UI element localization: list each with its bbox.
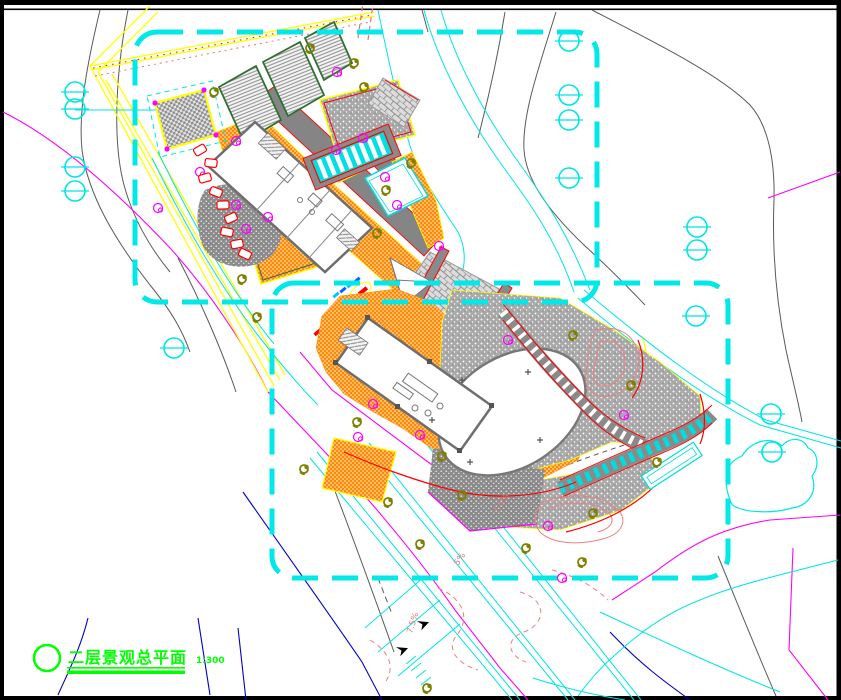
pond-outline — [726, 439, 817, 511]
title-block: 二层景观总平面 1:300 — [34, 645, 225, 674]
rockery-stone-icon — [217, 201, 229, 209]
orange-ramp — [322, 438, 396, 502]
flower-symbol-magenta-icon — [558, 574, 567, 583]
tree-symbol-cyan-icon — [555, 168, 583, 188]
tree-symbol-cyan-icon — [683, 240, 711, 260]
rockery-stone-icon — [205, 158, 218, 167]
shrub-symbol-olive-icon — [238, 275, 247, 284]
title-reference-circle — [34, 645, 60, 671]
drawing-scale: 1:300 — [196, 656, 225, 666]
slope-label: 5% — [452, 551, 468, 568]
shrub-symbol-olive-icon — [353, 418, 362, 427]
shrub-symbol-olive-icon — [384, 498, 393, 507]
tree-symbol-cyan-icon — [61, 157, 89, 177]
rockery-stone-icon — [193, 144, 207, 157]
site-plan-drawing: 7.5%5%7.5% 二层景观总平面 1:300 — [0, 0, 841, 700]
rockery-stone-icon — [230, 239, 243, 249]
shrub-symbol-olive-icon — [300, 465, 309, 474]
tree-symbol-cyan-icon — [160, 338, 188, 358]
cad-drawing-viewport: 7.5%5%7.5% 二层景观总平面 1:300 — [0, 0, 841, 700]
flower-symbol-magenta-icon — [354, 433, 363, 442]
shrub-symbol-olive-icon — [578, 558, 587, 567]
tree-symbol-cyan-icon — [555, 110, 583, 130]
tree-symbol-cyan-icon — [61, 181, 89, 201]
shrub-symbol-olive-icon — [423, 684, 432, 693]
flow-arrow-icon — [396, 643, 410, 656]
slope-label: 7.5% — [405, 611, 421, 635]
tree-symbol-cyan-icon — [555, 85, 583, 105]
shrub-symbol-olive-icon — [522, 544, 531, 553]
shrub-symbol-olive-icon — [416, 540, 425, 549]
drawing-title: 二层景观总平面 — [68, 648, 187, 667]
checker-plaza — [155, 90, 216, 149]
tree-symbol-cyan-icon — [683, 217, 711, 237]
flower-symbol-magenta-icon — [435, 242, 444, 251]
flower-symbol-magenta-icon — [154, 204, 163, 213]
rockery-stone-icon — [220, 227, 233, 237]
tree-symbol-cyan-icon — [682, 306, 710, 326]
